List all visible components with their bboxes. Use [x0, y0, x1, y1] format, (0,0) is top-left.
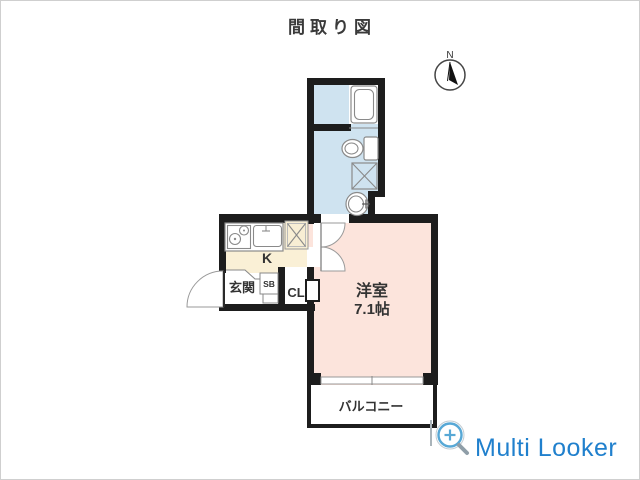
bathtub-icon	[351, 86, 377, 123]
main-room-label: 洋室	[356, 281, 388, 300]
entrance-label: 玄関	[229, 280, 255, 295]
watermark-brand: Multi Looker	[475, 434, 617, 463]
floorplan-drawing: N K 玄関 SB CL 洋室 7.1帖 バルコニー	[1, 1, 640, 480]
kitchen-label: K	[262, 250, 272, 266]
closet-label: CL	[287, 285, 304, 300]
washroom-door-opening	[321, 214, 349, 223]
compass-icon: N	[435, 50, 465, 90]
entrance-door-arc	[187, 271, 223, 307]
closet-door	[306, 280, 319, 301]
main-room-size: 7.1帖	[354, 300, 390, 318]
floorplan-image: 間取り図	[0, 0, 640, 480]
door-recess-left	[307, 247, 321, 267]
balcony-label: バルコニー	[339, 399, 404, 414]
washing-machine-icon	[352, 163, 377, 189]
balcony-window	[321, 376, 423, 385]
shoebox-label: SB	[263, 279, 275, 289]
refrigerator-space-icon	[285, 221, 308, 249]
door-recess-top	[313, 223, 321, 249]
